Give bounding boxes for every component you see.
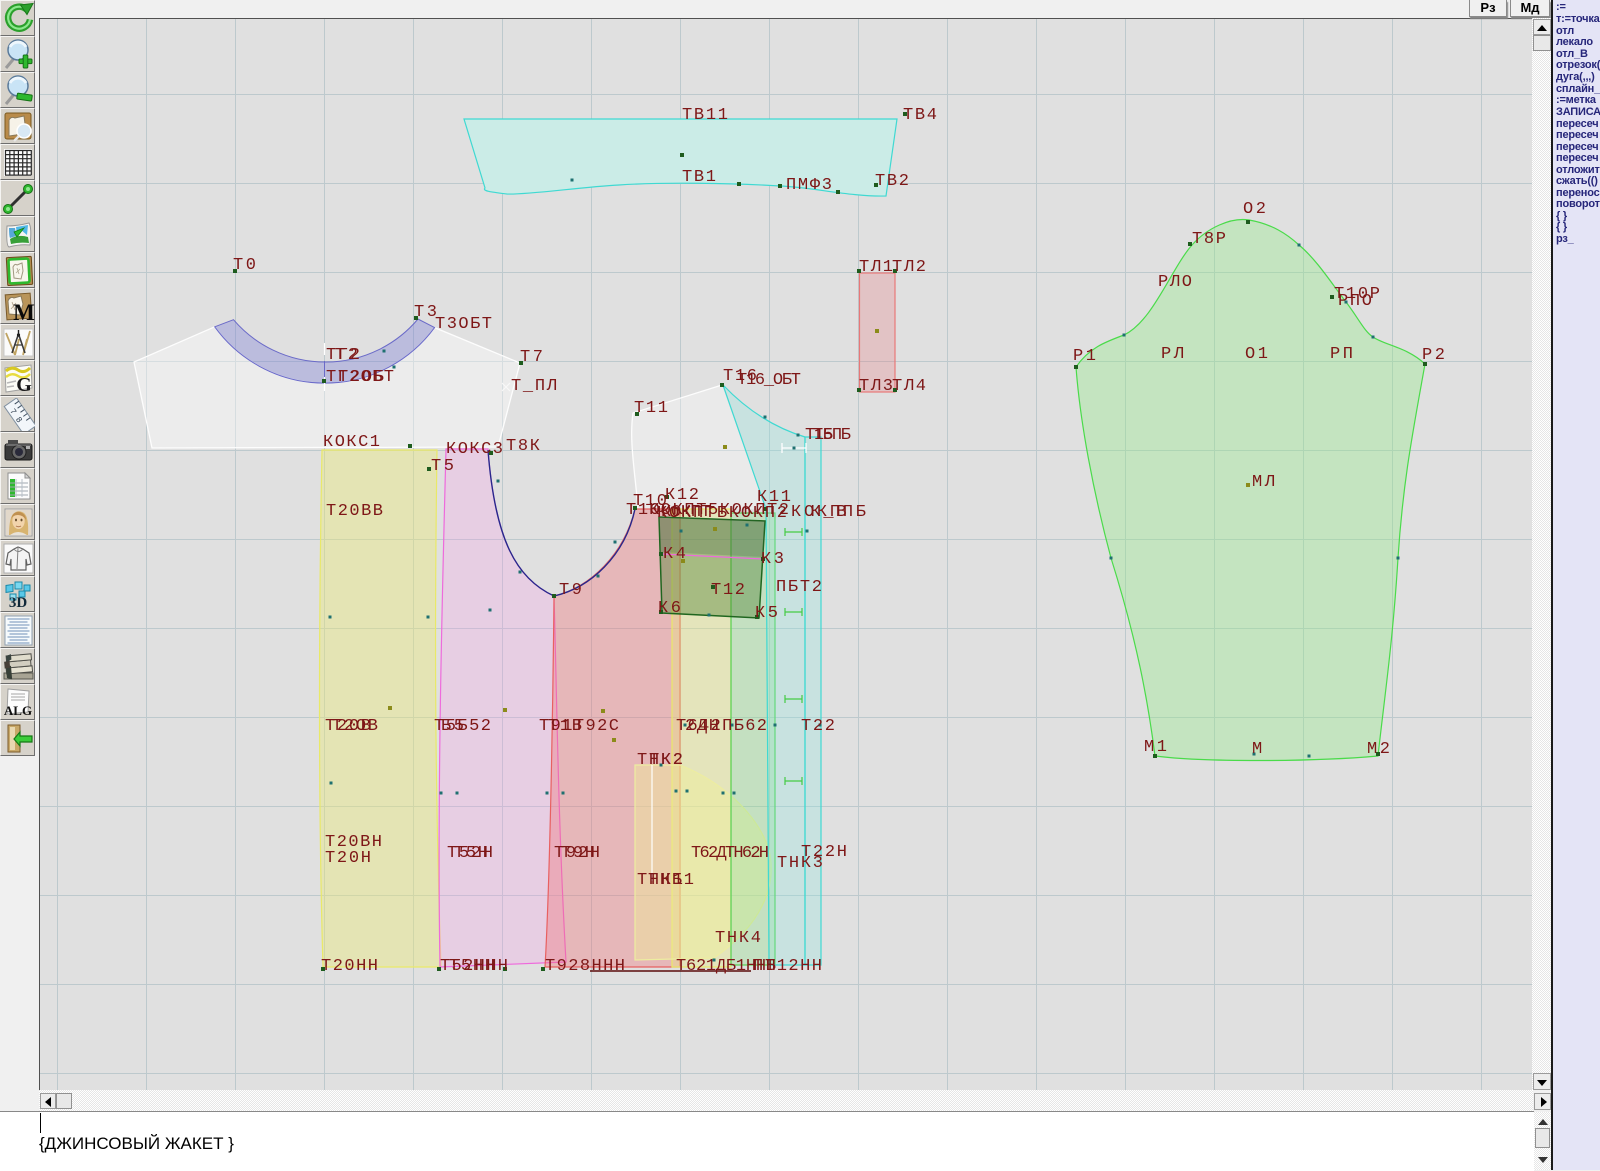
svg-text:ТЛ3: ТЛ3 [859, 377, 893, 396]
svg-text:Т8Р: Т8Р [1192, 230, 1226, 249]
svg-text:ТК2: ТК2 [649, 751, 683, 770]
svg-text:Т1В: Т1В [548, 717, 582, 736]
svg-text:Т7: Т7 [520, 348, 543, 367]
svg-text:Т62ДТН62Н: Т62ДТН62Н [691, 844, 769, 863]
svg-text:М: М [1252, 740, 1262, 759]
svg-text:Т3: Т3 [414, 303, 437, 322]
svg-text:Т5Н: Т5Н [454, 844, 488, 863]
svg-text:Т2ОБ: Т2ОБ [338, 368, 384, 387]
svg-text:Т3ОБТ: Т3ОБТ [435, 315, 492, 334]
svg-text:Т20НН: Т20НН [321, 957, 378, 976]
svg-text:G: G [16, 374, 32, 395]
svg-text:ТВ11: ТВ11 [682, 106, 728, 125]
svg-text:Т5НН: Т5НН [449, 957, 495, 976]
svg-text:Т11: Т11 [634, 399, 668, 418]
svg-text:Т5: Т5 [431, 457, 454, 476]
svg-text:РЛО: РЛО [1158, 273, 1192, 292]
svg-text:Р2: Р2 [1422, 346, 1445, 365]
svg-text:Т16_ОБТ: Т16_ОБТ [737, 371, 801, 390]
svg-text:Т22: Т22 [801, 717, 835, 736]
svg-text:ALG: ALG [4, 703, 32, 718]
svg-text:ПМФ3: ПМФ3 [786, 176, 832, 195]
svg-text:ТНБ1: ТНБ1 [648, 871, 694, 890]
svg-text:Т8К: Т8К [506, 437, 540, 456]
svg-text:ТВ2: ТВ2 [875, 172, 909, 191]
svg-text:Т12НН: Т12НН [765, 957, 822, 976]
svg-text:Т20ВВ: Т20ВВ [326, 502, 383, 521]
svg-text:О2: О2 [1243, 200, 1266, 219]
svg-text:Т22Н: Т22Н [801, 843, 847, 862]
svg-text:Т12: Т12 [711, 581, 745, 600]
svg-text:КОКПТБКОКП2: КОКПТБКОКП2 [657, 504, 787, 523]
svg-text:Т2ОВ: Т2ОВ [332, 717, 378, 736]
svg-text:Т20Н: Т20Н [325, 849, 371, 868]
svg-text:ТЛ1: ТЛ1 [859, 258, 893, 277]
svg-text:Т928ННН: Т928ННН [545, 957, 625, 976]
svg-text:2ДН: 2ДН [685, 717, 719, 736]
svg-text:M: M [13, 300, 35, 323]
svg-text:ТНК4: ТНК4 [715, 929, 761, 948]
svg-text:ТВ1: ТВ1 [682, 168, 716, 187]
svg-text:ПБТ2: ПБТ2 [776, 578, 822, 597]
svg-text:Т9Н: Т9Н [561, 844, 595, 863]
svg-text:ТЛ2: ТЛ2 [892, 258, 926, 277]
svg-text:РПО: РПО [1338, 292, 1372, 311]
svg-text:Т_ПЛ: Т_ПЛ [511, 377, 557, 396]
svg-text:ТБ: ТБ [813, 426, 833, 445]
svg-text:КОКС3: КОКС3 [446, 440, 503, 459]
svg-text:КОКС1: КОКС1 [323, 433, 380, 452]
svg-text:ТЛ4: ТЛ4 [892, 377, 926, 396]
svg-text:К ОКК_ПВП Б: К ОКК_ПВП Б [791, 503, 866, 522]
svg-text:ТВ4: ТВ4 [903, 106, 937, 125]
svg-text:3D: 3D [9, 595, 28, 611]
